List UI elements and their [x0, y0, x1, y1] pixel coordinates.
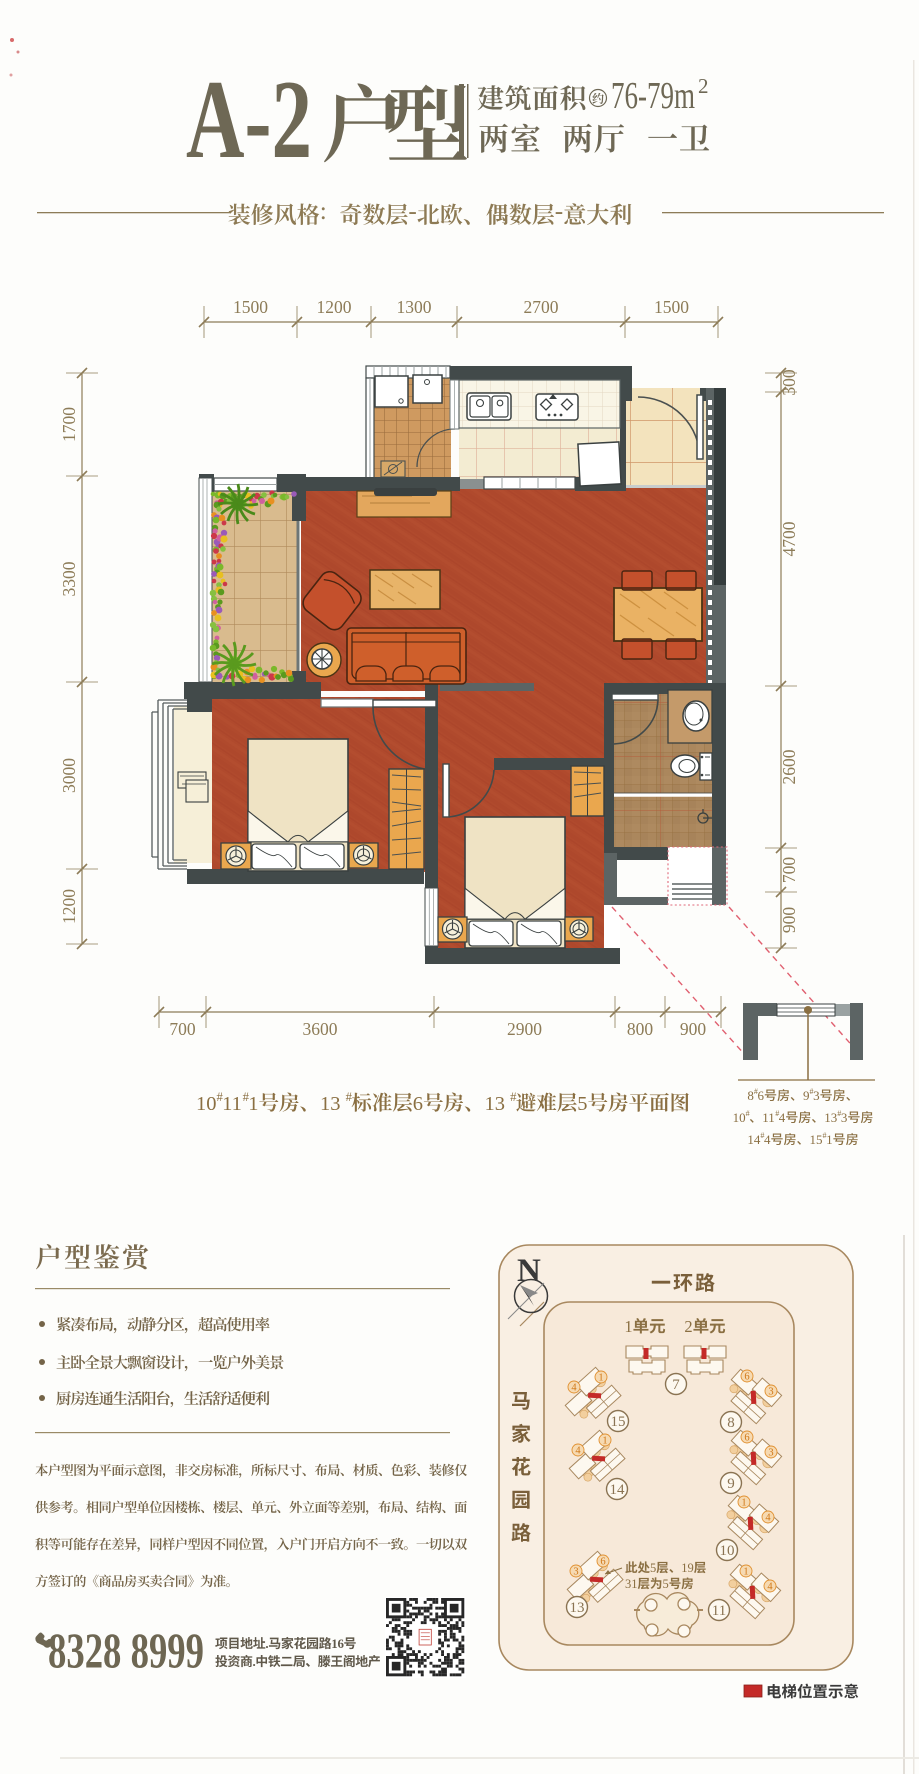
- svg-text:14: 14: [747, 1132, 761, 1147]
- svg-text:9: 9: [727, 1476, 735, 1492]
- svg-text:1500: 1500: [654, 297, 689, 317]
- svg-text:1: 1: [743, 1567, 748, 1578]
- svg-text:3: 3: [768, 1448, 773, 1459]
- svg-text:10: 10: [196, 1093, 217, 1115]
- svg-text:1: 1: [624, 1317, 632, 1336]
- svg-text:10: 10: [733, 1110, 746, 1125]
- svg-text:4: 4: [765, 1513, 771, 1524]
- svg-text:800: 800: [627, 1019, 654, 1039]
- svg-text:3600: 3600: [303, 1019, 338, 1039]
- svg-text:3: 3: [768, 1387, 773, 1398]
- svg-text:5: 5: [650, 1561, 656, 1575]
- svg-text:6: 6: [600, 1557, 605, 1568]
- svg-text:#: #: [346, 1090, 353, 1104]
- svg-text:11: 11: [762, 1110, 775, 1125]
- svg-text:10: 10: [720, 1543, 735, 1559]
- svg-text:300: 300: [779, 369, 799, 396]
- svg-text:.: .: [265, 1637, 268, 1651]
- svg-text:5: 5: [577, 1093, 587, 1115]
- svg-text:6: 6: [744, 1433, 749, 1444]
- svg-text:13: 13: [320, 1093, 341, 1115]
- svg-text:1: 1: [602, 1436, 607, 1447]
- svg-text:11: 11: [222, 1093, 242, 1115]
- svg-text:6: 6: [758, 1088, 765, 1103]
- svg-text:8328 8999: 8328 8999: [48, 1622, 204, 1678]
- svg-text:13: 13: [570, 1600, 585, 1616]
- svg-text:7: 7: [672, 1377, 680, 1393]
- svg-text:3: 3: [573, 1567, 578, 1578]
- svg-text:.: .: [253, 1655, 256, 1669]
- svg-text:900: 900: [779, 907, 799, 934]
- svg-text:16: 16: [331, 1637, 344, 1651]
- svg-text:1: 1: [598, 1373, 603, 1384]
- svg-text:700: 700: [779, 857, 799, 884]
- svg-text:1700: 1700: [59, 407, 79, 442]
- svg-text:11: 11: [712, 1603, 726, 1619]
- svg-text:A-2: A-2: [186, 58, 312, 182]
- svg-text:4: 4: [779, 1110, 786, 1125]
- svg-text:#: #: [746, 1109, 750, 1118]
- svg-text:1200: 1200: [317, 297, 352, 317]
- svg-text:4: 4: [571, 1383, 577, 1394]
- svg-text:4: 4: [764, 1132, 771, 1147]
- svg-text:2: 2: [698, 74, 709, 98]
- svg-text:1500: 1500: [233, 297, 268, 317]
- svg-text:8: 8: [727, 1415, 735, 1431]
- svg-text:6: 6: [413, 1093, 423, 1115]
- svg-text:1: 1: [741, 1498, 746, 1509]
- svg-text:13: 13: [824, 1110, 837, 1125]
- svg-text:1: 1: [826, 1132, 833, 1147]
- svg-text:4: 4: [767, 1582, 773, 1593]
- svg-text:4: 4: [575, 1446, 581, 1457]
- svg-text:3300: 3300: [59, 561, 79, 596]
- svg-text:19: 19: [681, 1561, 694, 1575]
- svg-text:-: -: [555, 197, 563, 225]
- svg-text:700: 700: [169, 1019, 196, 1039]
- svg-text:15: 15: [810, 1132, 823, 1147]
- svg-text:2900: 2900: [507, 1019, 542, 1039]
- svg-text:2600: 2600: [779, 749, 799, 784]
- svg-text:1300: 1300: [397, 297, 432, 317]
- svg-text:2700: 2700: [524, 297, 559, 317]
- svg-text:15: 15: [611, 1414, 626, 1430]
- svg-text:3: 3: [813, 1088, 820, 1103]
- svg-text:76-79m: 76-79m: [611, 75, 695, 117]
- svg-text:2: 2: [684, 1317, 692, 1336]
- svg-text:1: 1: [248, 1093, 258, 1115]
- svg-text::: :: [320, 197, 327, 225]
- svg-text:3000: 3000: [59, 758, 79, 793]
- svg-text:6: 6: [744, 1372, 749, 1383]
- svg-text:3: 3: [841, 1110, 848, 1125]
- svg-text:1200: 1200: [59, 889, 79, 924]
- svg-text:900: 900: [680, 1019, 707, 1039]
- svg-text:-: -: [408, 197, 416, 225]
- svg-text:14: 14: [610, 1482, 626, 1498]
- svg-text:5: 5: [663, 1577, 669, 1591]
- svg-text:13: 13: [485, 1093, 506, 1115]
- svg-text:#: #: [510, 1090, 517, 1104]
- svg-text:4700: 4700: [779, 521, 799, 556]
- svg-text:31: 31: [625, 1577, 638, 1591]
